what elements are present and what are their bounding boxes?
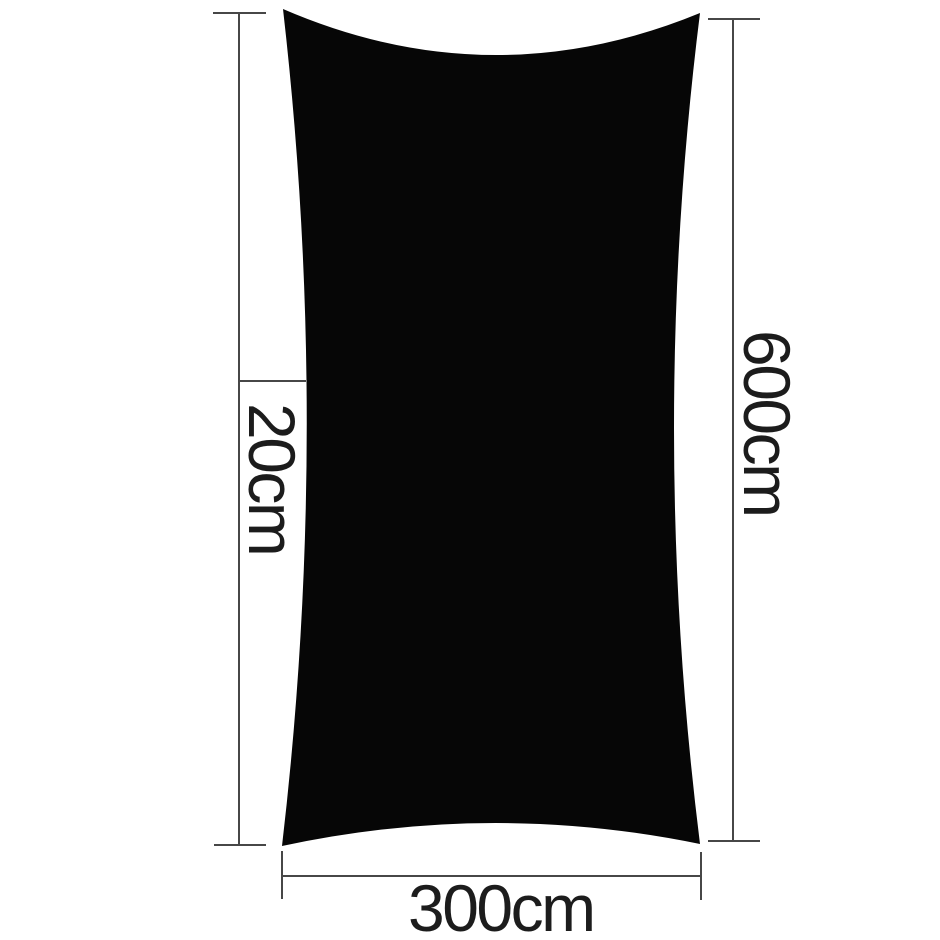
shade-sail-path [282, 9, 700, 846]
left-dimension-mid-tick [239, 380, 306, 382]
dimension-label-curve-depth: 20cm [239, 403, 305, 554]
right-dimension-cap-top [708, 18, 760, 20]
bottom-dimension-tick-right [700, 852, 702, 900]
dimension-label-height: 600cm [734, 330, 800, 516]
right-dimension-cap-bottom [708, 840, 760, 842]
bottom-dimension-tick-left [281, 851, 283, 899]
dimension-diagram: 20cm 600cm 300cm [0, 0, 940, 940]
left-dimension-cap-top [213, 12, 266, 14]
left-dimension-cap-bottom [214, 844, 266, 846]
dimension-label-width: 300cm [408, 875, 594, 940]
